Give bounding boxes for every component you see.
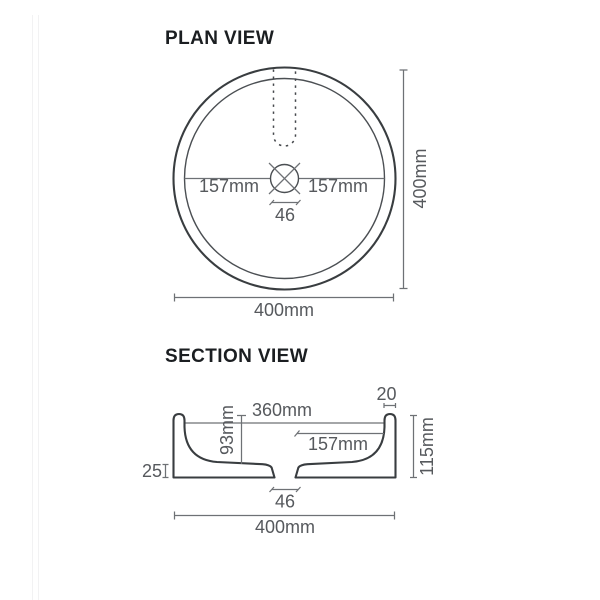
basin-drawing-svg: PLAN VIEW 157mm 157mm 46 400mm 400mm S	[0, 0, 600, 600]
plan-view: PLAN VIEW 157mm 157mm 46 400mm 400mm	[165, 28, 430, 320]
dim-section-wall-thickness-label: 20	[376, 384, 396, 404]
dim-plan-height-label: 400mm	[410, 148, 430, 208]
technical-drawing-page: PLAN VIEW 157mm 157mm 46 400mm 400mm S	[0, 0, 600, 600]
section-view: SECTION VIEW 360mm 93mm 157mm 20 115mm 2…	[142, 346, 437, 537]
dim-section-base-label: 25	[142, 461, 162, 481]
dim-section-inner-width-label: 360mm	[252, 400, 312, 420]
dim-section-radius-label: 157mm	[308, 434, 368, 454]
dim-plan-width-label: 400mm	[254, 300, 314, 320]
overflow-dashed-outline	[274, 70, 296, 147]
dim-section-drain-label: 46	[275, 492, 295, 512]
dim-section-width-label: 400mm	[255, 517, 315, 537]
plan-view-title: PLAN VIEW	[165, 28, 274, 49]
dim-plan-left-radius-label: 157mm	[199, 176, 259, 196]
section-view-title: SECTION VIEW	[165, 346, 308, 367]
dim-section-depth-label: 93mm	[217, 405, 237, 455]
dim-plan-right-radius-label: 157mm	[308, 176, 368, 196]
dim-plan-drain-label: 46	[275, 205, 295, 225]
dim-section-height-label: 115mm	[417, 417, 437, 476]
